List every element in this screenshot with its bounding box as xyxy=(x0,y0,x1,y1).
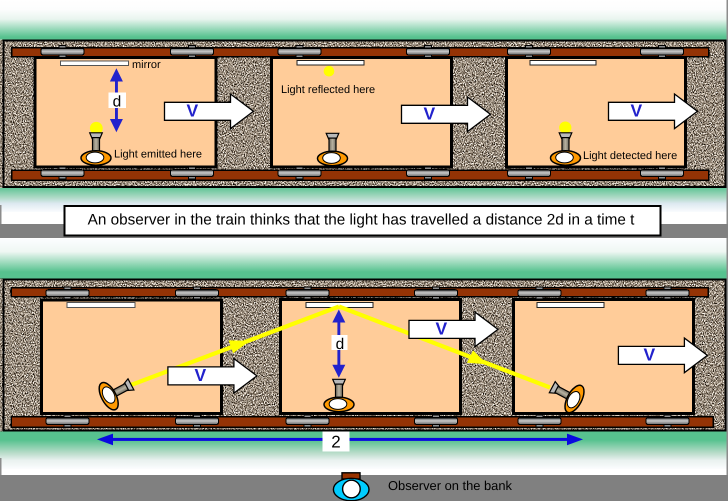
svg-text:mirror: mirror xyxy=(132,59,161,71)
svg-text:Observer on the bank: Observer on the bank xyxy=(388,478,513,493)
svg-text:Light emitted here: Light emitted here xyxy=(114,149,202,161)
svg-text:d: d xyxy=(336,336,345,353)
svg-text:V: V xyxy=(644,345,656,365)
svg-text:V: V xyxy=(187,101,199,121)
svg-text:V: V xyxy=(436,319,448,339)
svg-text:V: V xyxy=(195,365,207,385)
svg-text:V: V xyxy=(424,104,436,124)
svg-text:V: V xyxy=(631,101,643,121)
svg-text:2: 2 xyxy=(331,432,340,451)
svg-text:An observer in the train think: An observer in the train thinks that the… xyxy=(88,212,635,229)
svg-text:d: d xyxy=(113,93,122,110)
svg-text:Light detected here: Light detected here xyxy=(583,150,677,162)
svg-text:Light reflected here: Light reflected here xyxy=(281,84,375,96)
